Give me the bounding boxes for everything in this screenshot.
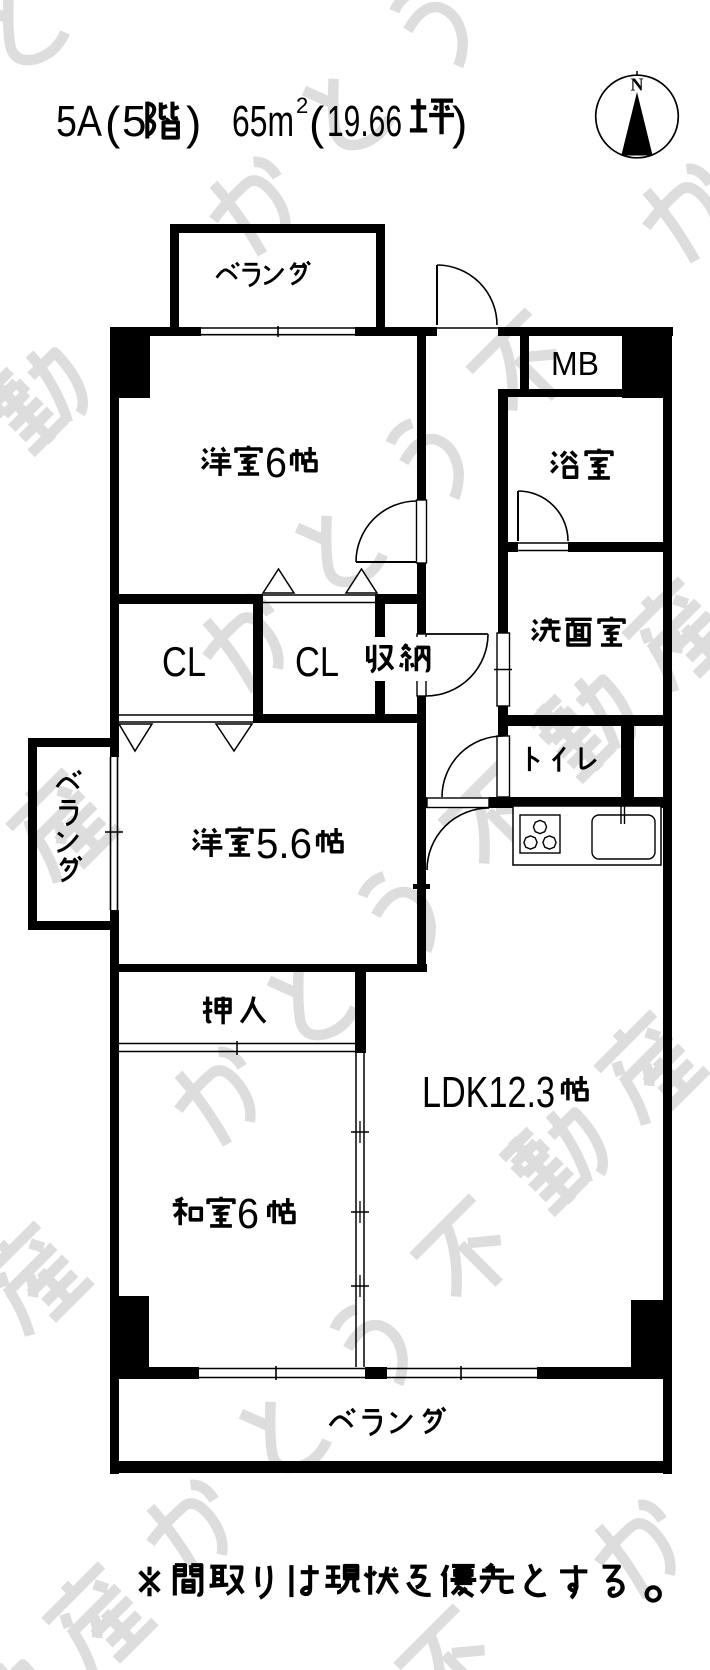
svg-text:): ) bbox=[452, 97, 467, 149]
svg-text:CL: CL bbox=[162, 638, 206, 685]
svg-text:): ) bbox=[186, 97, 201, 149]
svg-text:19.66: 19.66 bbox=[327, 97, 402, 146]
svg-text:5: 5 bbox=[122, 97, 146, 146]
svg-text:MB: MB bbox=[551, 345, 599, 382]
svg-text:LDK12.3: LDK12.3 bbox=[422, 1068, 555, 1117]
svg-text:5A: 5A bbox=[56, 97, 103, 146]
svg-text:(: ( bbox=[309, 97, 325, 149]
svg-text:65m: 65m bbox=[232, 97, 294, 146]
svg-text:6: 6 bbox=[237, 1190, 259, 1238]
svg-text:CL: CL bbox=[295, 638, 339, 685]
svg-text:6: 6 bbox=[265, 439, 287, 487]
svg-text:N: N bbox=[631, 75, 644, 95]
svg-text:(: ( bbox=[105, 97, 121, 149]
svg-text:5.6: 5.6 bbox=[256, 820, 312, 868]
svg-text:2: 2 bbox=[296, 93, 308, 118]
